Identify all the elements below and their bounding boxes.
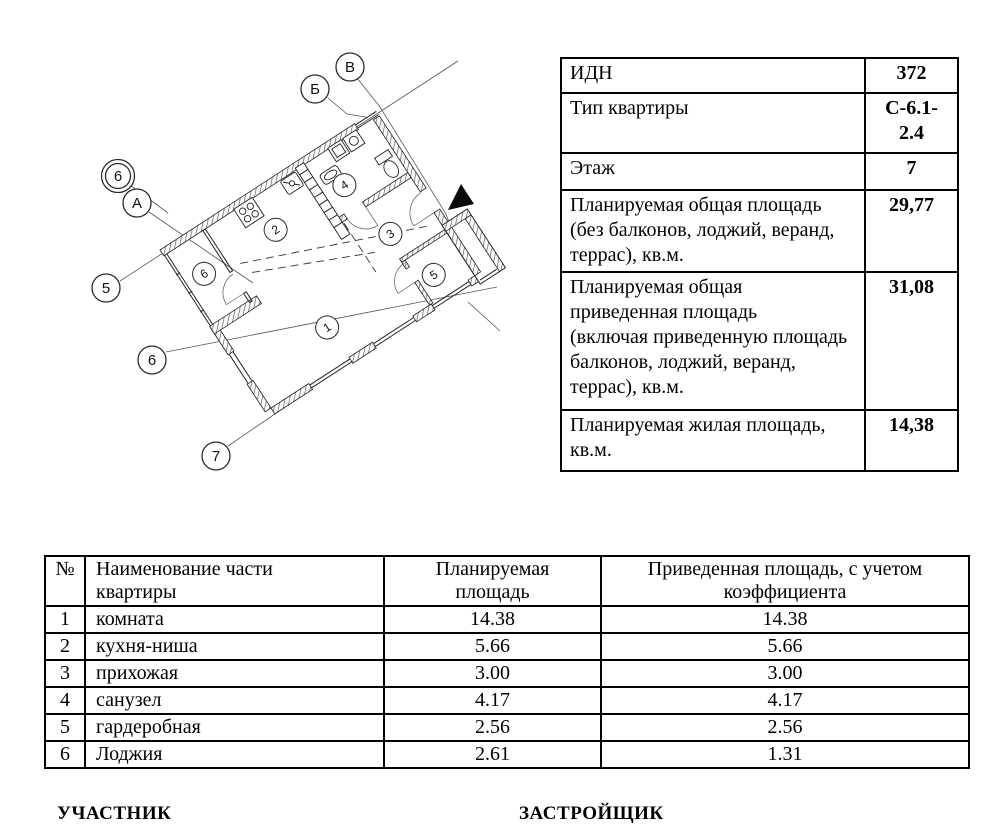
window [229, 352, 252, 384]
room-name: комната [85, 606, 384, 633]
info-label: Планируемая жилая площадь, кв.м. [561, 410, 865, 471]
room-name: Лоджия [85, 741, 384, 768]
room-name: гардеробная [85, 714, 384, 741]
axis-label: 7 [212, 448, 220, 465]
room-name: санузел [85, 687, 384, 714]
room-planned-area: 2.56 [384, 714, 601, 741]
loggia-bottom-wall [210, 296, 262, 334]
room-num: 4 [45, 687, 85, 714]
info-value: 372 [865, 58, 958, 93]
axis-circle-6: 6 [138, 346, 166, 374]
room-planned-area: 5.66 [384, 633, 601, 660]
axis-label: 5 [102, 280, 110, 297]
room-circle-5: 5 [418, 259, 450, 291]
room-reduced-area: 2.56 [601, 714, 969, 741]
table-row: 4 санузел 4.17 4.17 [45, 687, 969, 714]
hall-dashed-line [344, 223, 376, 272]
room-num: 1 [45, 606, 85, 633]
developer-signature-label: ЗАСТРОЙЩИК [519, 803, 664, 825]
room-circle-3: 3 [375, 218, 407, 250]
room-reduced-area: 1.31 [601, 741, 969, 768]
table-row: Тип квартиры С-6.1- 2.4 [561, 93, 958, 153]
room-reduced-area: 5.66 [601, 633, 969, 660]
room-reduced-area: 3.00 [601, 660, 969, 687]
room-num: 2 [45, 633, 85, 660]
axis-circle-5: 5 [92, 274, 120, 302]
table-row: 6 Лоджия 2.61 1.31 [45, 741, 969, 768]
info-value: 31,08 [865, 272, 958, 410]
room-reduced-area: 14.38 [601, 606, 969, 633]
col-header-name: Наименование части квартиры [85, 556, 384, 606]
table-row: Этаж 7 [561, 153, 958, 190]
info-value: С-6.1- 2.4 [865, 93, 958, 153]
axis-circle-a: А [123, 189, 151, 217]
entrance-direction-marker [448, 184, 474, 210]
room-name: прихожая [85, 660, 384, 687]
room-areas-table: № Наименование части квартиры Планируема… [44, 555, 970, 769]
col-header-num: № [45, 556, 85, 606]
axis-label: Б [310, 81, 320, 98]
table-header-row: № Наименование части квартиры Планируема… [45, 556, 969, 606]
room-circle-1: 1 [311, 312, 343, 344]
table-row: 2 кухня-ниша 5.66 5.66 [45, 633, 969, 660]
table-row: 3 прихожая 3.00 3.00 [45, 660, 969, 687]
axis-label: 6 [148, 352, 156, 369]
document-page: { "floor_plan": { "axis_labels": {"v":"В… [0, 0, 1000, 816]
info-value: 7 [865, 153, 958, 190]
apartment-info-table: ИДН 372 Тип квартиры С-6.1- 2.4 Этаж 7 П… [560, 57, 959, 472]
axis-label: 6 [114, 168, 122, 185]
room-circle-6: 6 [188, 258, 220, 290]
col-header-planned: Планируемая площадь [384, 556, 601, 606]
info-value: 14,38 [865, 410, 958, 471]
room-planned-area: 2.61 [384, 741, 601, 768]
entrance-door [401, 193, 434, 226]
room-reduced-area: 4.17 [601, 687, 969, 714]
info-label: Тип квартиры [561, 93, 865, 153]
axis-label: В [345, 59, 355, 76]
room-num: 5 [45, 714, 85, 741]
axis-circle-b: Б [301, 75, 329, 103]
room-circle-2: 2 [260, 214, 292, 246]
axis-circle-6-double: 6 [102, 160, 135, 193]
room-num: 3 [45, 660, 85, 687]
participant-signature-label: УЧАСТНИК [57, 803, 171, 825]
table-row: Планируемая общая приведенная площадь (в… [561, 272, 958, 410]
table-row: 5 гардеробная 2.56 2.56 [45, 714, 969, 741]
floor-plan-drawing: 1 2 3 4 5 6 В Б 6 [0, 0, 540, 510]
table-row: Планируемая общая площадь (без балконов,… [561, 190, 958, 272]
room-planned-area: 3.00 [384, 660, 601, 687]
info-label: Этаж [561, 153, 865, 190]
table-row: ИДН 372 [561, 58, 958, 93]
axis-circle-7: 7 [202, 442, 230, 470]
room-num: 6 [45, 741, 85, 768]
axis-circle-v: В [336, 53, 364, 81]
room-planned-area: 14.38 [384, 606, 601, 633]
axis-label: А [132, 195, 142, 212]
room-planned-area: 4.17 [384, 687, 601, 714]
table-row: Планируемая жилая площадь, кв.м. 14,38 [561, 410, 958, 471]
info-label: Планируемая общая приведенная площадь (в… [561, 272, 865, 410]
room-name: кухня-ниша [85, 633, 384, 660]
col-header-reduced: Приведенная площадь, с учетом коэффициен… [601, 556, 969, 606]
info-label: Планируемая общая площадь (без балконов,… [561, 190, 865, 272]
table-row: 1 комната 14.38 14.38 [45, 606, 969, 633]
info-label: ИДН [561, 58, 865, 93]
info-value: 29,77 [865, 190, 958, 272]
apartment-outline: 1 2 3 4 5 6 [160, 98, 505, 421]
